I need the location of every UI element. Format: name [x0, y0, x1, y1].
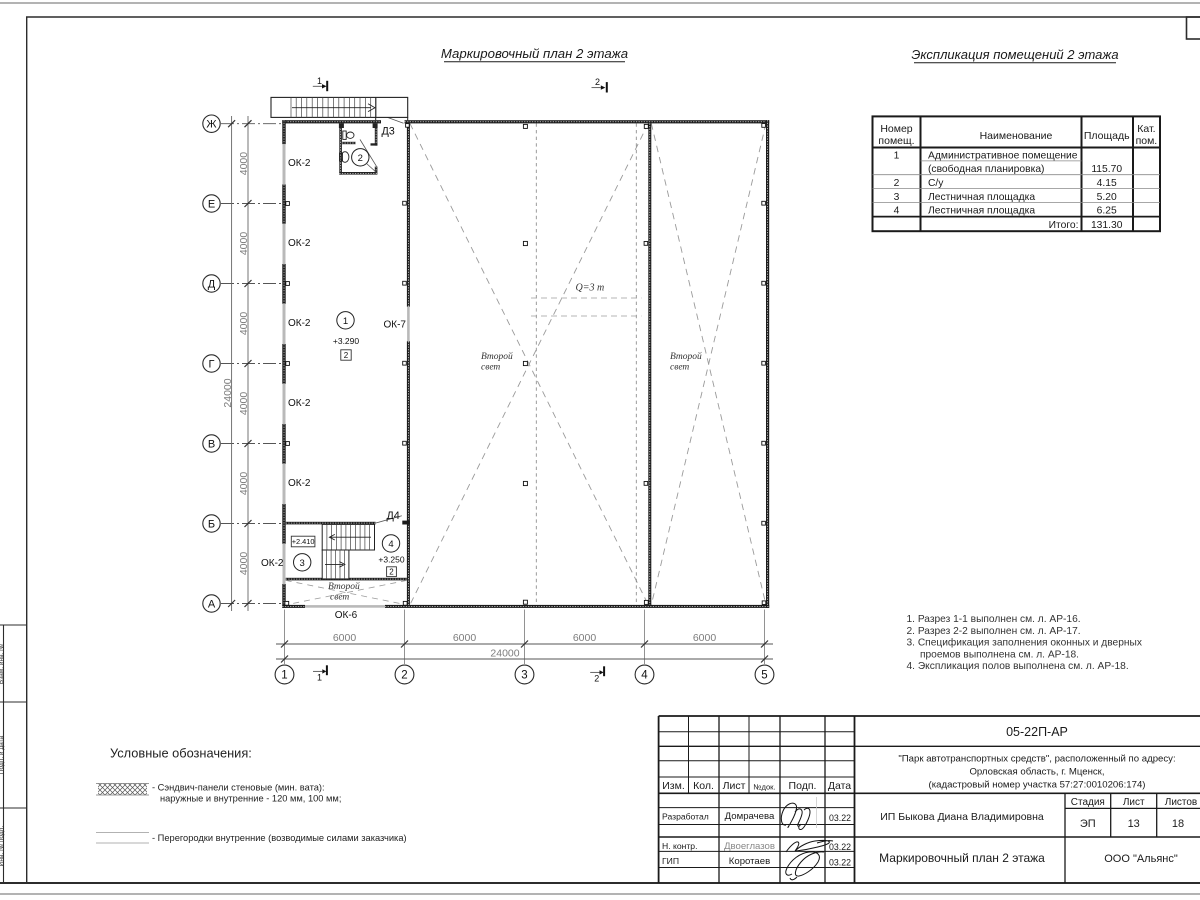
svg-text:3: 3 — [521, 670, 527, 682]
svg-text:Листов: Листов — [1165, 797, 1198, 808]
svg-text:Е: Е — [208, 198, 215, 210]
svg-text:пом.: пом. — [1136, 135, 1158, 147]
svg-text:03.22: 03.22 — [829, 842, 851, 852]
svg-text:4: 4 — [894, 206, 900, 217]
svg-text:ГИП: ГИП — [662, 856, 679, 866]
svg-text:Лестничная площадка: Лестничная площадка — [928, 192, 1035, 203]
svg-text:Подп.: Подп. — [789, 780, 817, 792]
svg-text:Подп. и дата: Подп. и дата — [0, 735, 5, 774]
svg-text:Второй: Второй — [670, 351, 702, 362]
svg-text:Стадия: Стадия — [1071, 797, 1105, 808]
svg-text:Экспликация помещений 2 этажа: Экспликация помещений 2 этажа — [911, 47, 1118, 62]
svg-text:Изм.: Изм. — [662, 780, 685, 792]
svg-text:Наименование: Наименование — [980, 130, 1053, 142]
svg-text:4: 4 — [641, 670, 648, 682]
svg-text:Номер: Номер — [880, 123, 912, 135]
svg-text:Двоеглазов: Двоеглазов — [724, 841, 775, 852]
svg-text:наружные и внутренние - 120 мм: наружные и внутренние - 120 мм, 100 мм; — [160, 794, 341, 804]
svg-text:1: 1 — [894, 150, 900, 161]
svg-text:Г: Г — [209, 358, 215, 370]
svg-text:ИП Быкова Диана Владимировна: ИП Быкова Диана Владимировна — [880, 811, 1044, 823]
svg-text:свет: свет — [481, 363, 500, 373]
svg-text:ООО "Альянс": ООО "Альянс" — [1104, 853, 1178, 865]
svg-text:Орловская область, г. Мценск,: Орловская область, г. Мценск, — [969, 767, 1104, 778]
svg-text:13: 13 — [1128, 818, 1140, 830]
svg-text:Разработал: Разработал — [662, 812, 709, 822]
svg-text:- Перегородки внутренние (возв: - Перегородки внутренние (возводимые сил… — [152, 833, 407, 843]
svg-text:Инв. № подл.: Инв. № подл. — [0, 826, 5, 867]
svg-text:ОК-2: ОК-2 — [261, 558, 284, 569]
svg-text:Второй: Второй — [328, 581, 360, 592]
svg-text:4000: 4000 — [238, 152, 250, 176]
svg-text:(кадастровый номер участка 57:: (кадастровый номер участка 57:27:0010206… — [929, 780, 1146, 791]
svg-text:Кол.: Кол. — [693, 780, 714, 792]
svg-text:2: 2 — [344, 351, 349, 360]
svg-text:Взам. инв. №: Взам. инв. № — [0, 644, 5, 684]
svg-text:Н. контр.: Н. контр. — [662, 841, 697, 851]
svg-text:ОК-2: ОК-2 — [288, 238, 311, 249]
svg-text:5: 5 — [761, 670, 767, 682]
svg-text:2. Разрез 2-2 выполнен см. л.: 2. Разрез 2-2 выполнен см. л. АР-17. — [907, 626, 1081, 637]
svg-text:Q=3 т: Q=3 т — [576, 283, 605, 294]
svg-text:Домрачева: Домрачева — [725, 811, 775, 822]
svg-text:4000: 4000 — [238, 552, 250, 576]
svg-text:Д: Д — [208, 278, 216, 290]
svg-text:4000: 4000 — [238, 312, 250, 336]
svg-text:2: 2 — [389, 568, 394, 577]
svg-text:Коротаев: Коротаев — [729, 856, 770, 867]
svg-text:05-22П-АР: 05-22П-АР — [1006, 725, 1068, 739]
svg-text:2: 2 — [401, 670, 407, 682]
svg-text:Лист: Лист — [723, 780, 746, 792]
svg-text:4000: 4000 — [238, 472, 250, 496]
svg-text:- Сэндвич-панели стеновые (мин: - Сэндвич-панели стеновые (мин. вата): — [152, 783, 325, 793]
svg-text:Маркировочный план 2 этажа: Маркировочный план 2 этажа — [879, 851, 1045, 865]
svg-text:115.70: 115.70 — [1091, 164, 1122, 175]
svg-text:24000: 24000 — [222, 378, 234, 407]
svg-text:№док.: №док. — [753, 783, 775, 792]
svg-text:Ж: Ж — [206, 119, 216, 131]
svg-text:1: 1 — [343, 316, 348, 327]
svg-text:С/у: С/у — [928, 178, 944, 189]
svg-text:Итого:: Итого: — [1049, 220, 1079, 231]
svg-text:131.30: 131.30 — [1091, 220, 1123, 231]
svg-text:18: 18 — [1172, 818, 1184, 830]
svg-text:Кат.: Кат. — [1137, 123, 1155, 135]
svg-text:1: 1 — [281, 670, 287, 682]
svg-text:ОК-2: ОК-2 — [288, 318, 311, 329]
svg-text:2: 2 — [894, 178, 900, 189]
svg-text:Б: Б — [208, 518, 215, 530]
svg-text:03.22: 03.22 — [829, 813, 851, 823]
svg-text:6000: 6000 — [693, 632, 717, 644]
svg-text:6.25: 6.25 — [1097, 206, 1117, 217]
svg-text:3: 3 — [894, 192, 900, 203]
svg-text:4: 4 — [388, 539, 393, 550]
svg-text:6000: 6000 — [453, 632, 477, 644]
svg-text:4000: 4000 — [238, 232, 250, 256]
svg-text:4. Экспликация полов выполнена: 4. Экспликация полов выполнена см. л. АР… — [907, 661, 1129, 672]
svg-text:Второй: Второй — [481, 351, 513, 362]
svg-text:проемов выполнена см. л. АР-18: проемов выполнена см. л. АР-18. — [920, 649, 1079, 660]
svg-text:2: 2 — [594, 674, 599, 684]
svg-text:+3.290: +3.290 — [333, 336, 360, 346]
svg-text:3: 3 — [300, 558, 305, 569]
svg-text:+3.250: +3.250 — [378, 555, 405, 565]
svg-text:помещ.: помещ. — [878, 135, 914, 147]
svg-text:4.15: 4.15 — [1097, 178, 1117, 189]
svg-text:1: 1 — [317, 76, 322, 86]
svg-text:1: 1 — [317, 673, 322, 683]
svg-text:(свободная планировка): (свободная планировка) — [928, 163, 1044, 175]
svg-text:03.22: 03.22 — [829, 857, 851, 867]
svg-text:24000: 24000 — [490, 648, 519, 660]
svg-text:+2.410: +2.410 — [292, 537, 315, 546]
svg-text:Площадь: Площадь — [1084, 130, 1130, 142]
svg-text:Административное помещение: Административное помещение — [928, 150, 1078, 161]
svg-text:Маркировочный план 2 этажа: Маркировочный план 2 этажа — [441, 46, 628, 61]
svg-text:свет: свет — [330, 592, 349, 602]
svg-text:ОК-6: ОК-6 — [335, 610, 358, 621]
svg-text:А: А — [208, 598, 216, 610]
svg-text:5.20: 5.20 — [1097, 192, 1117, 203]
svg-text:6000: 6000 — [573, 632, 597, 644]
svg-text:Лист: Лист — [1123, 797, 1145, 808]
svg-text:ОК-2: ОК-2 — [288, 398, 311, 409]
svg-text:Д4: Д4 — [387, 510, 400, 522]
svg-text:В: В — [208, 438, 215, 450]
svg-text:4000: 4000 — [238, 392, 250, 416]
svg-text:Условные обозначения:: Условные обозначения: — [110, 746, 252, 761]
svg-text:свет: свет — [670, 363, 689, 373]
svg-text:Д3: Д3 — [382, 126, 395, 138]
svg-text:6000: 6000 — [333, 632, 357, 644]
svg-text:Дата: Дата — [828, 780, 851, 792]
svg-text:2: 2 — [358, 153, 363, 164]
svg-text:2: 2 — [595, 77, 600, 87]
svg-text:ОК-2: ОК-2 — [288, 158, 311, 169]
svg-text:"Парк автотранспортных средств: "Парк автотранспортных средств", располо… — [898, 754, 1175, 765]
svg-text:ЭП: ЭП — [1080, 818, 1096, 830]
svg-text:1. Разрез 1-1 выполнен см. л.: 1. Разрез 1-1 выполнен см. л. АР-16. — [907, 614, 1081, 625]
svg-text:Лестничная площадка: Лестничная площадка — [928, 206, 1035, 217]
svg-text:ОК-2: ОК-2 — [288, 478, 311, 489]
svg-text:3. Спецификация заполнения око: 3. Спецификация заполнения оконных и две… — [907, 637, 1142, 649]
svg-text:ОК-7: ОК-7 — [384, 320, 407, 331]
